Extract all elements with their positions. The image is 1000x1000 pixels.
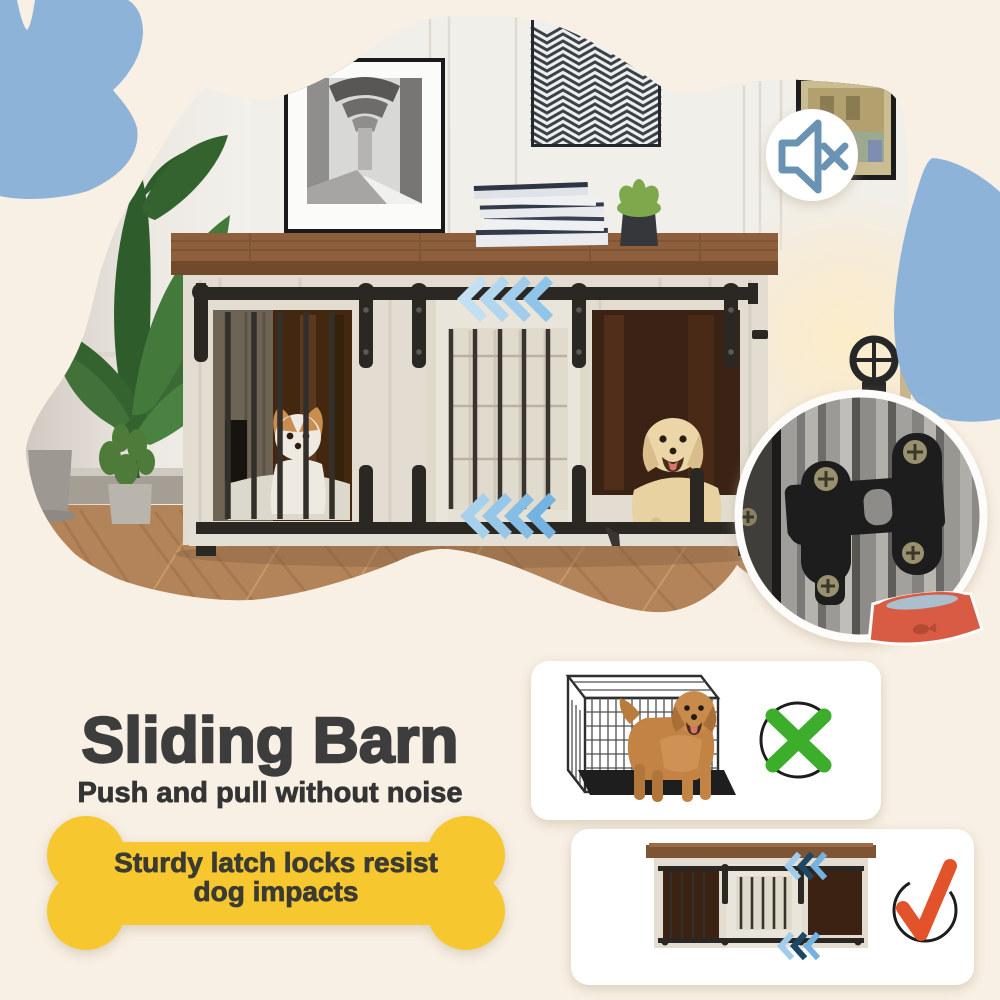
svg-text:Sliding Barn: Sliding Barn	[82, 704, 459, 776]
svg-text:Sturdy latch locks resist: Sturdy latch locks resist	[114, 847, 438, 878]
svg-text:Push and pull without noise: Push and pull without noise	[77, 777, 462, 809]
svg-text:dog impacts: dog impacts	[194, 876, 359, 907]
